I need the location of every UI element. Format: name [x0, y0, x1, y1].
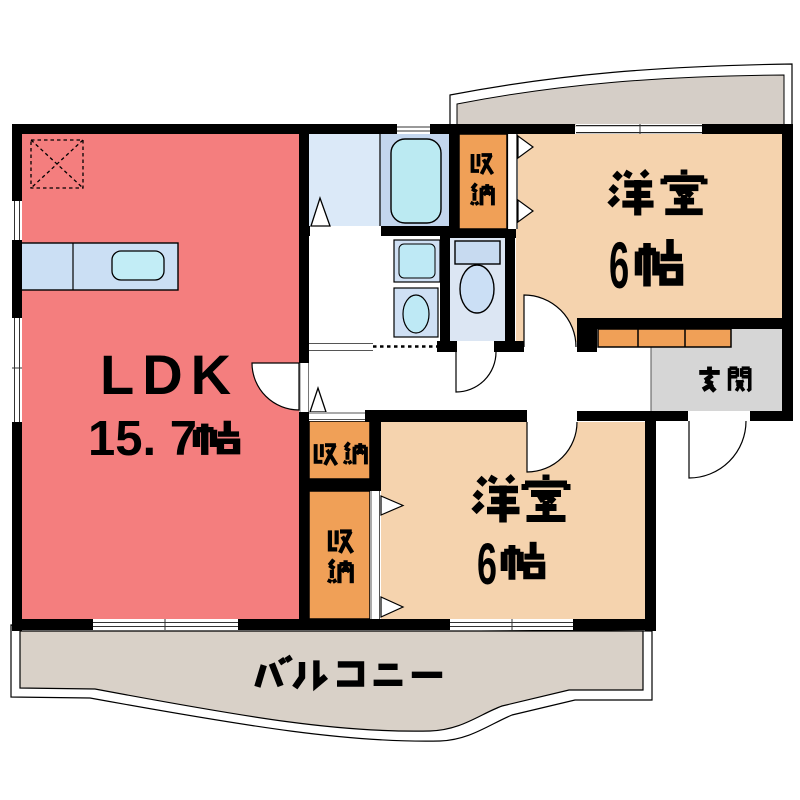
svg-text:15. 7: 15. 7 [88, 412, 197, 466]
svg-text:LDK: LDK [100, 343, 239, 406]
svg-text:6: 6 [609, 230, 629, 303]
svg-text:6: 6 [477, 532, 497, 597]
